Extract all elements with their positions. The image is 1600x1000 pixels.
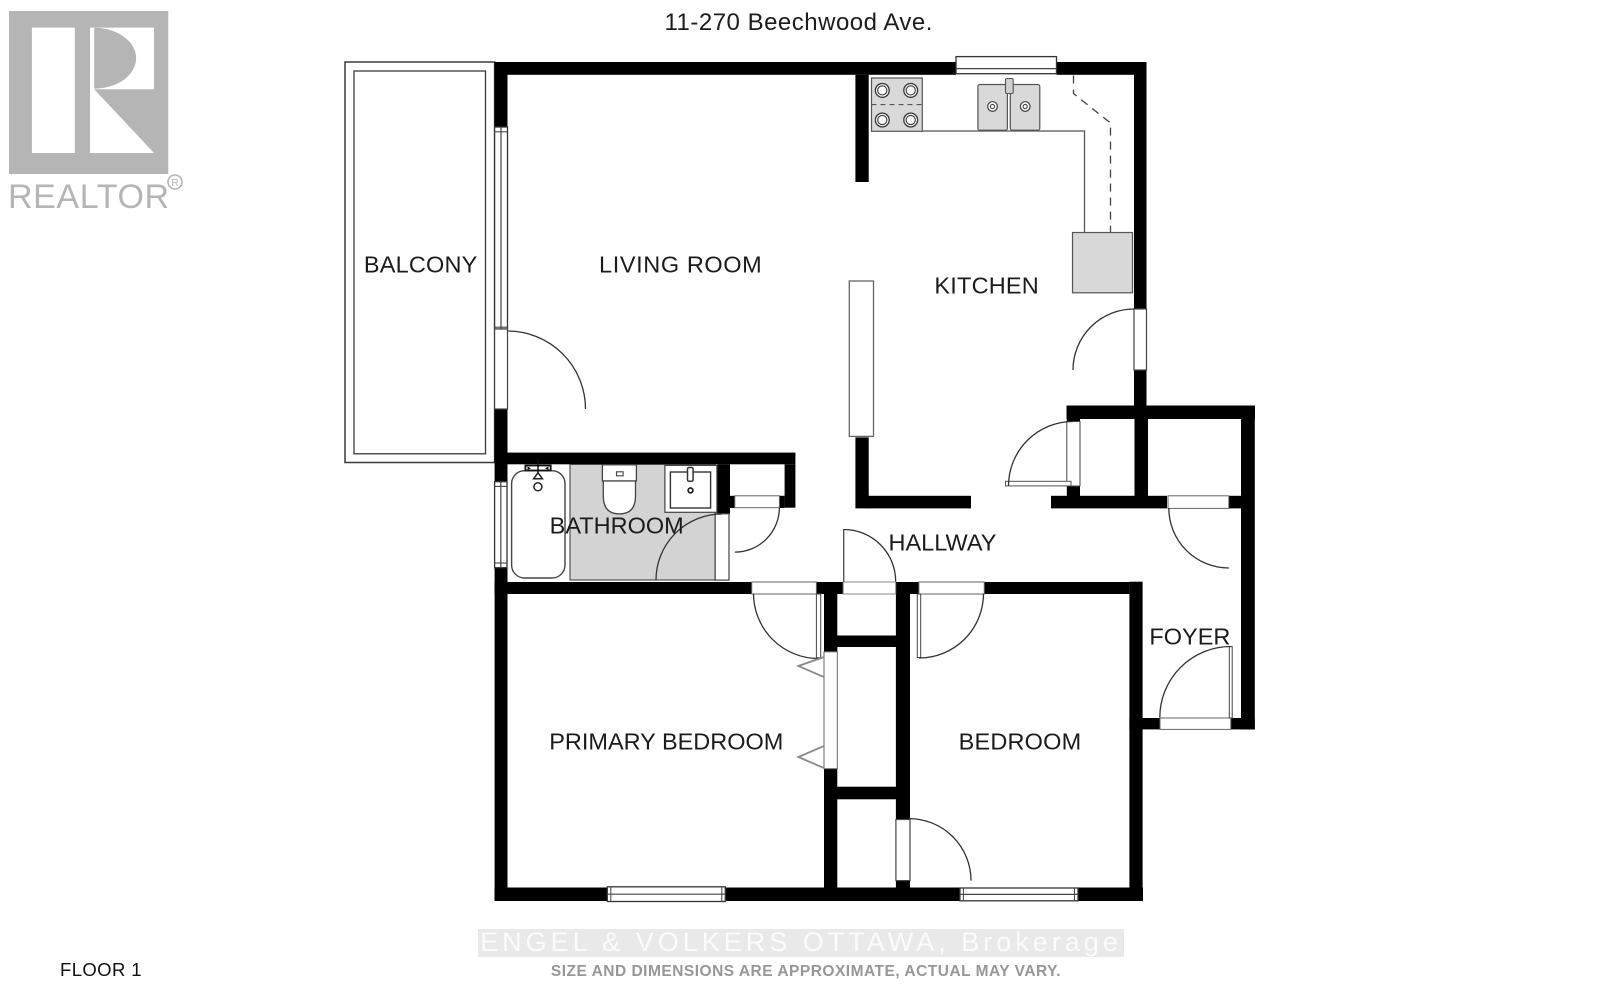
svg-text:R: R (171, 178, 178, 189)
svg-text:BEDROOM: BEDROOM (959, 729, 1082, 755)
svg-text:LIVING ROOM: LIVING ROOM (599, 252, 762, 278)
svg-text:FLOOR 1: FLOOR 1 (60, 959, 142, 980)
svg-text:HALLWAY: HALLWAY (889, 530, 997, 556)
svg-text:PRIMARY BEDROOM: PRIMARY BEDROOM (549, 729, 783, 755)
svg-text:FOYER: FOYER (1149, 624, 1230, 650)
svg-text:BALCONY: BALCONY (364, 252, 478, 278)
svg-text:ENGEL & VOLKERS OTTAWA, Broker: ENGEL & VOLKERS OTTAWA, Brokerage (480, 927, 1122, 957)
svg-text:BATHROOM: BATHROOM (550, 512, 684, 538)
svg-text:11-270 Beechwood Ave.: 11-270 Beechwood Ave. (664, 9, 932, 36)
svg-text:SIZE AND DIMENSIONS ARE APPROX: SIZE AND DIMENSIONS ARE APPROXIMATE, ACT… (551, 963, 1061, 980)
svg-text:REALTOR: REALTOR (8, 178, 170, 216)
svg-text:KITCHEN: KITCHEN (934, 273, 1039, 299)
